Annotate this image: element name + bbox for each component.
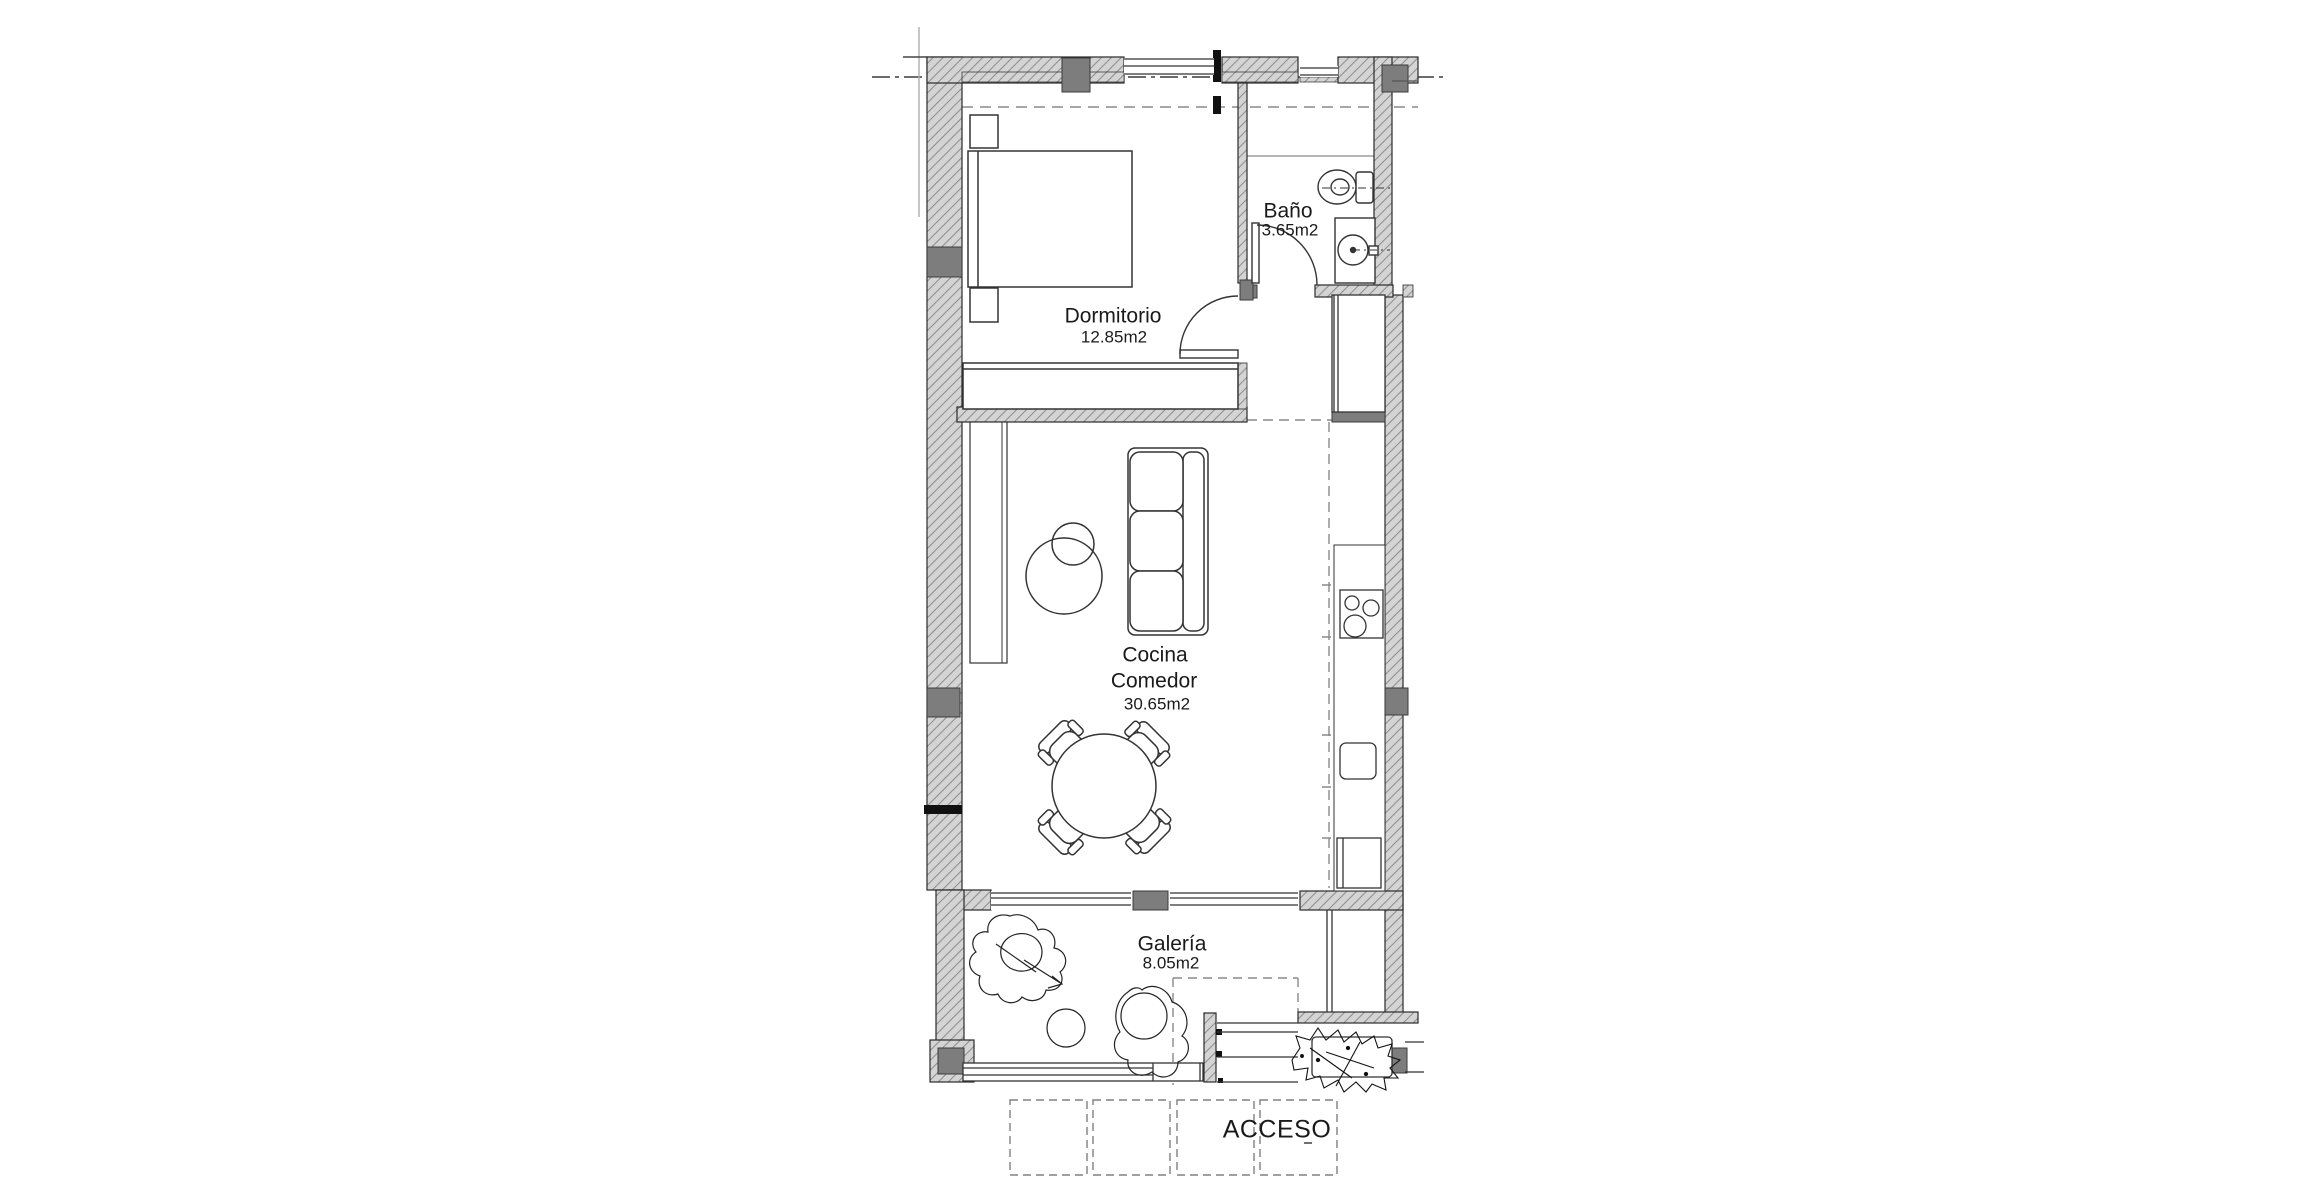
window-icon (1124, 58, 1214, 75)
room-label-galeria: Galería (1138, 934, 1207, 955)
window-icon (963, 1063, 1203, 1081)
coffee-table-icon (1026, 538, 1102, 614)
plant-icon (970, 915, 1066, 1003)
room-label-cocina: Cocina (1122, 645, 1187, 666)
sideboard-icon (970, 422, 1007, 663)
room-label-comedor: Comedor (1111, 671, 1197, 692)
column-icon (927, 688, 960, 717)
floor-plan: Dormitorio 12.85m2 Baño 3.65m2 Cocina Co… (0, 0, 2304, 1185)
room-area-dormitorio: 12.85m2 (1081, 329, 1147, 346)
sofa-icon (1128, 448, 1208, 635)
column-icon (1133, 891, 1168, 910)
room-label-dormitorio: Dormitorio (1065, 306, 1162, 327)
window-icon (991, 891, 1131, 910)
coffee-table-icon (1052, 523, 1094, 565)
column-icon (1383, 688, 1408, 715)
column-icon (1382, 65, 1408, 92)
bedroom-furniture (963, 115, 1238, 409)
side-table-icon (1047, 1009, 1085, 1047)
steps-icon (1217, 1023, 1298, 1082)
column-icon (1062, 58, 1090, 92)
kitchen (1332, 295, 1385, 891)
appliance-icon (1337, 838, 1381, 888)
paving-tile-icon (1093, 1100, 1170, 1175)
wardrobe-icon (963, 363, 1238, 409)
unit-base-icon (1332, 412, 1385, 422)
floor-plan-drawing (0, 0, 2304, 1185)
bed-icon (968, 151, 1132, 287)
room-area-cocina-comedor: 30.65m2 (1124, 696, 1190, 713)
door-jamb-icon (1240, 280, 1253, 300)
window-icon (1170, 891, 1298, 910)
column-icon (927, 247, 962, 277)
hob-icon (1340, 590, 1383, 638)
window-icon (1327, 910, 1332, 1012)
tall-unit-icon (1332, 295, 1385, 412)
dining-table-icon (1052, 734, 1156, 838)
dining-set (1033, 715, 1176, 860)
column-icon (938, 1048, 964, 1074)
living-furniture (970, 422, 1208, 860)
paving-tile-icon (1010, 1100, 1087, 1175)
kitchen-sink-icon (1340, 743, 1376, 779)
entrance (1217, 1023, 1424, 1092)
room-area-galeria: 8.05m2 (1143, 955, 1200, 972)
nightstand-icon (970, 115, 998, 148)
room-label-bano: Baño (1263, 201, 1312, 222)
door-icon (1180, 296, 1238, 358)
entrance-label: ACCESO (1223, 1118, 1332, 1143)
window-icon (1300, 66, 1338, 77)
nightstand-icon (970, 288, 998, 322)
room-area-bano: 3.65m2 (1262, 222, 1319, 239)
